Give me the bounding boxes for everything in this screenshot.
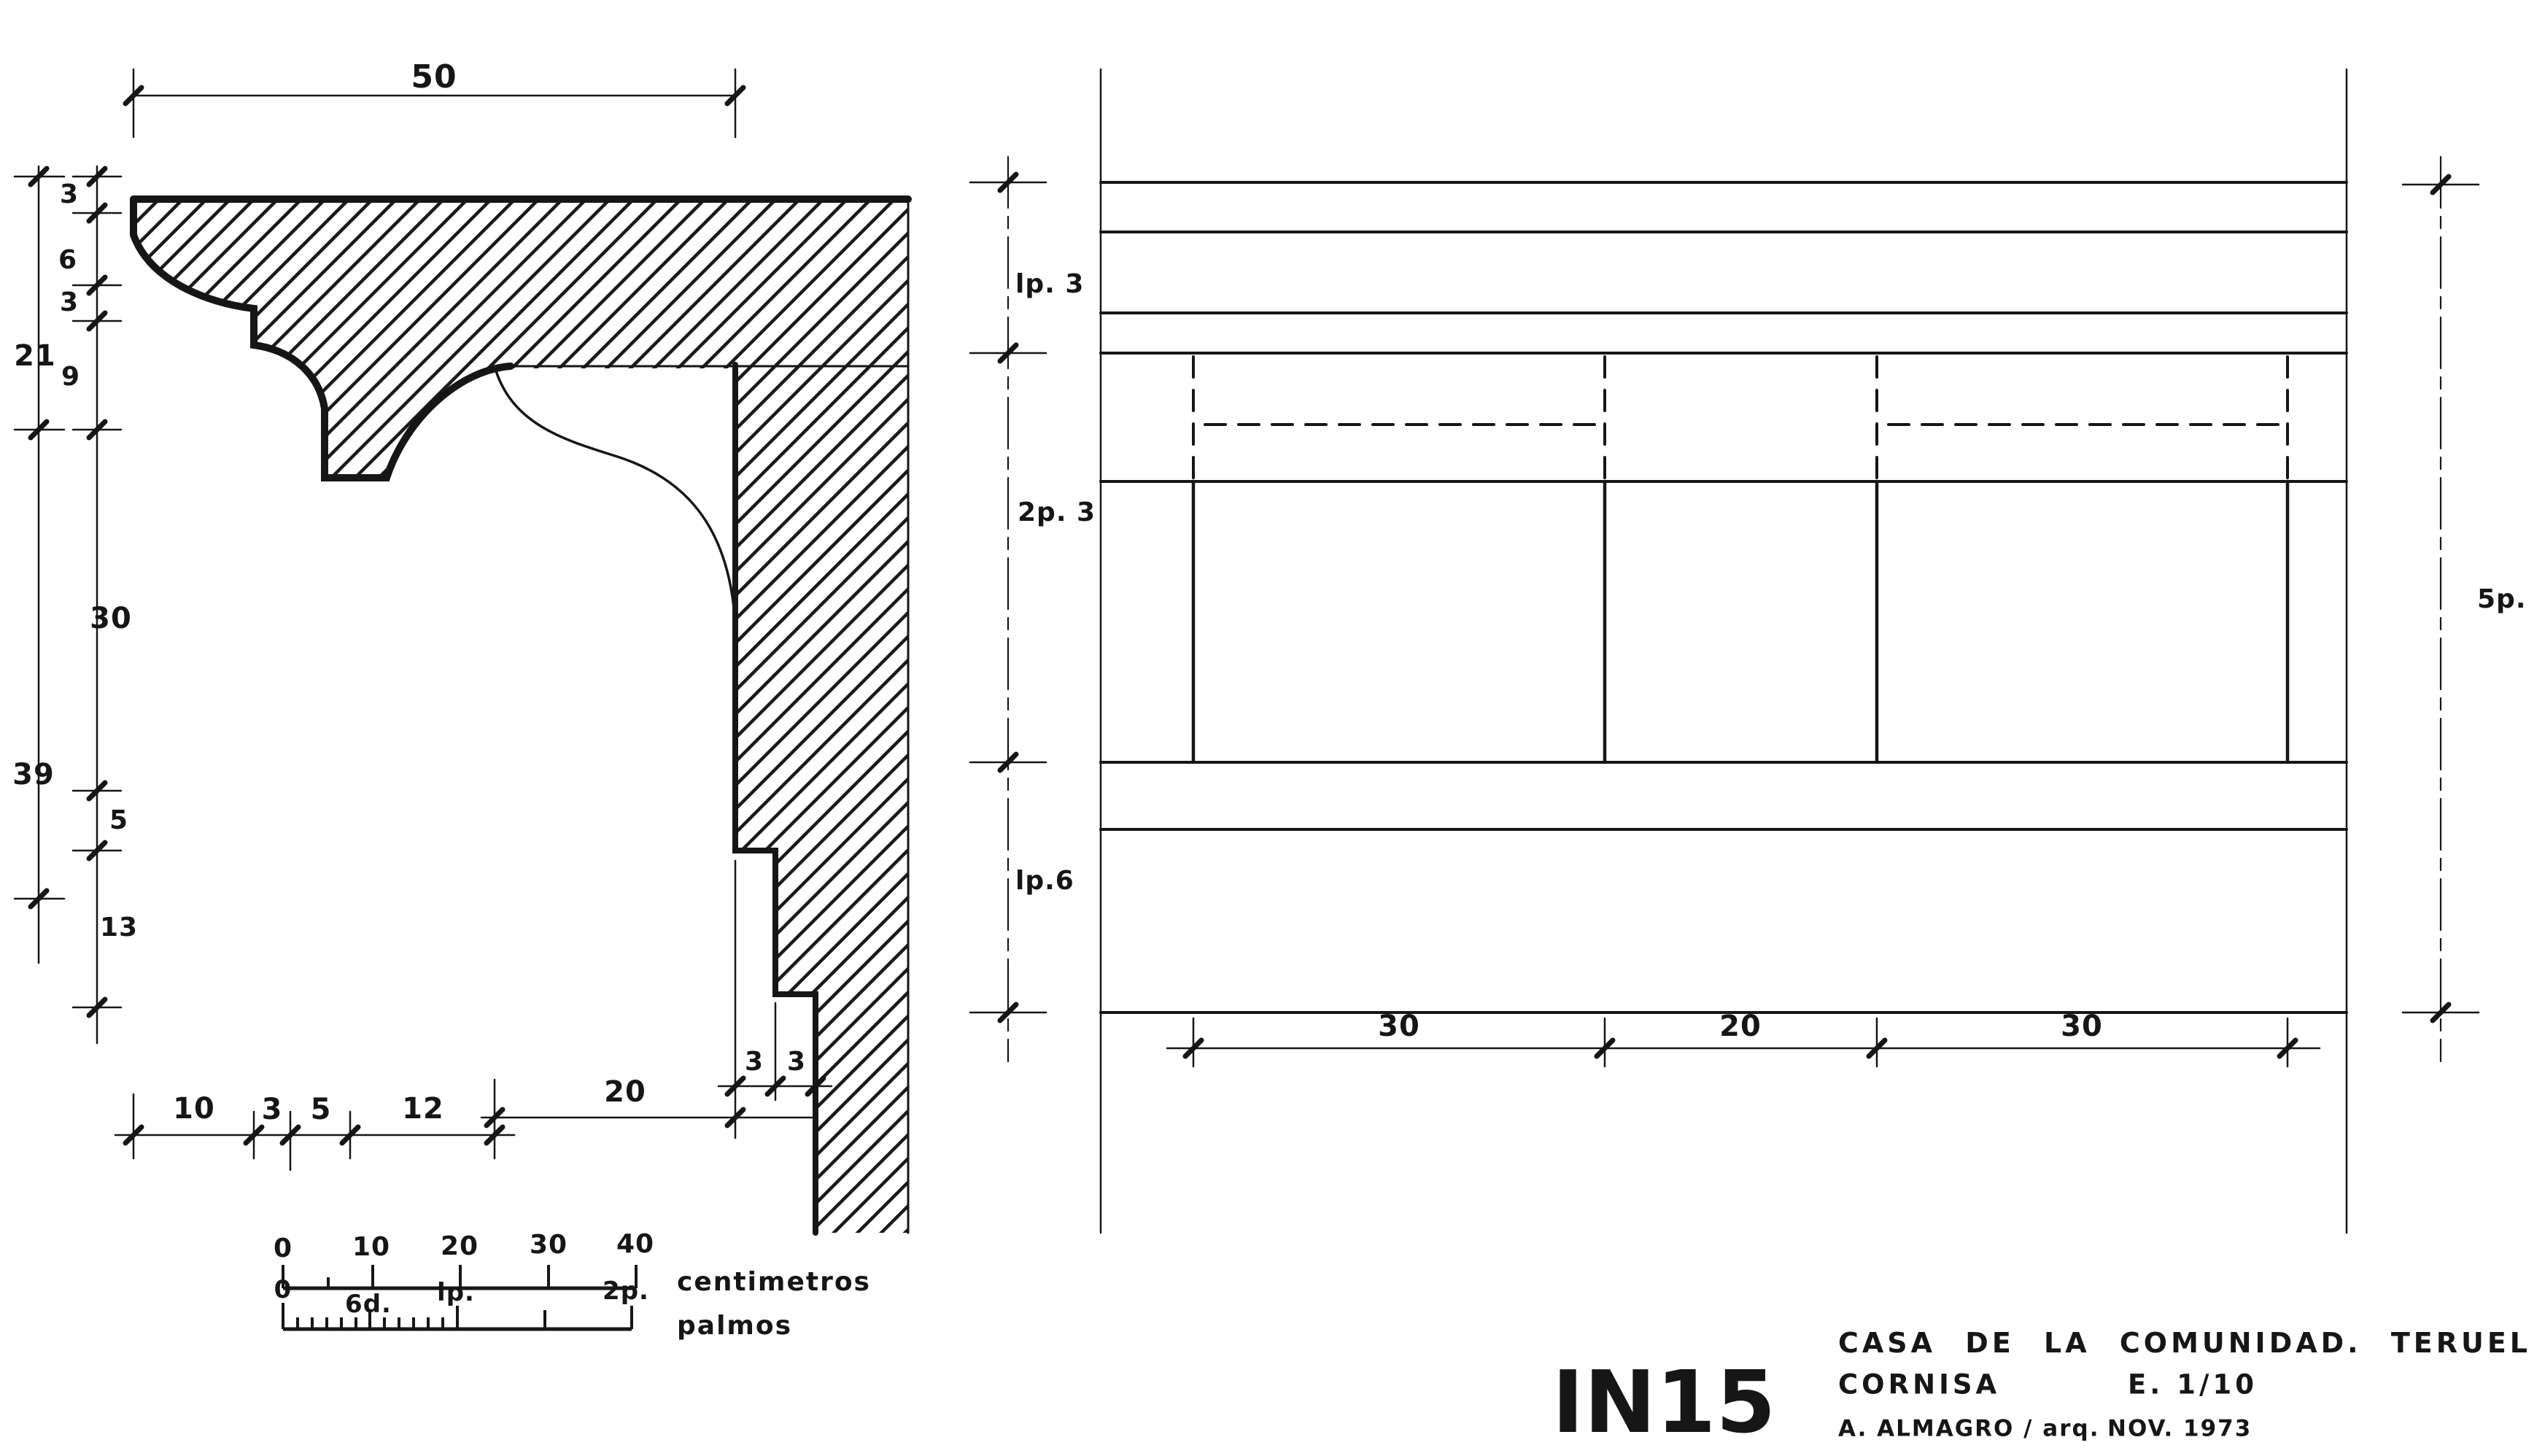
dim-label-elev-5p: 5p.: [2477, 586, 2527, 613]
dim-label-inner-6: 6: [58, 247, 77, 274]
dim-label-bottom-12: 12: [402, 1094, 444, 1123]
hidden-edges: [1193, 357, 2288, 479]
dim-label-bottom-10: 10: [173, 1094, 215, 1123]
dim-label-bottom-5: 5: [311, 1095, 332, 1124]
title-scale: E. 1/10: [2128, 1371, 2258, 1398]
dim-label-inner-30: 30: [90, 604, 132, 633]
dim-label-elev-20: 20: [1719, 1012, 1762, 1041]
dim-label-inner-3a: 3: [60, 182, 79, 208]
dim-label-outer-39: 39: [12, 760, 55, 789]
elevation: [970, 69, 2479, 1233]
scalebar-cm-tick-40: 40: [616, 1231, 654, 1258]
scalebar-palmos-tick-2p: 2p.: [603, 1279, 649, 1304]
dim-label-inner-3b: 3: [60, 290, 79, 316]
scalebar-cm-tick-10: 10: [352, 1234, 390, 1261]
dim-label-elev-30a: 30: [1378, 1012, 1420, 1041]
dim-label-step-3b: 3: [787, 1049, 806, 1075]
drawing-sheet: 50 21 39 3 6 3 9 30 5 13 10 3 5 12 20 3 …: [0, 0, 2545, 1456]
dim-label-step-3a: 3: [745, 1049, 764, 1075]
scalebar-cm-tick-30: 30: [530, 1232, 568, 1258]
dim-label-elev-30b: 30: [2061, 1012, 2103, 1041]
dim-label-bottom-20: 20: [604, 1077, 646, 1107]
title-project: CASA DE LA COMUNIDAD. TERUEL: [1838, 1329, 2531, 1357]
title-date: NOV. 1973: [2107, 1418, 2252, 1441]
dim-label-inner-9: 9: [61, 364, 80, 390]
scalebar-palmos-tick-1p: lp.: [437, 1280, 475, 1305]
dim-label-top-width: 50: [411, 61, 457, 93]
title-subject: CORNISA: [1838, 1371, 2000, 1398]
dim-label-elev-1p3: lp. 3: [1015, 271, 1084, 298]
section-modillion-curve: [495, 366, 735, 624]
dim-label-bottom-3: 3: [262, 1095, 283, 1124]
dim-label-elev-1p6: lp.6: [1015, 868, 1074, 894]
title-author: A. ALMAGRO / arq.: [1838, 1418, 2099, 1441]
dim-label-inner-13: 13: [100, 915, 138, 941]
scalebar-palmos-tick-0: 0: [274, 1277, 293, 1302]
dim-label-outer-21: 21: [14, 341, 56, 371]
section-hatch-wall: [735, 368, 908, 1233]
scalebar-cm-tick-0: 0: [274, 1236, 293, 1262]
dim-label-elev-2p3: 2p. 3: [1018, 500, 1096, 526]
scalebar-palmos-label: palmos: [677, 1313, 792, 1339]
scalebar-palmos-tick-6d: 6d.: [345, 1292, 392, 1317]
drawing-code: IN15: [1552, 1359, 1776, 1445]
section-profile: [15, 69, 908, 1233]
scalebar-cm-tick-20: 20: [441, 1234, 479, 1260]
dim-label-inner-5: 5: [109, 808, 128, 834]
scalebar-cm-label: centimetros: [677, 1269, 871, 1296]
